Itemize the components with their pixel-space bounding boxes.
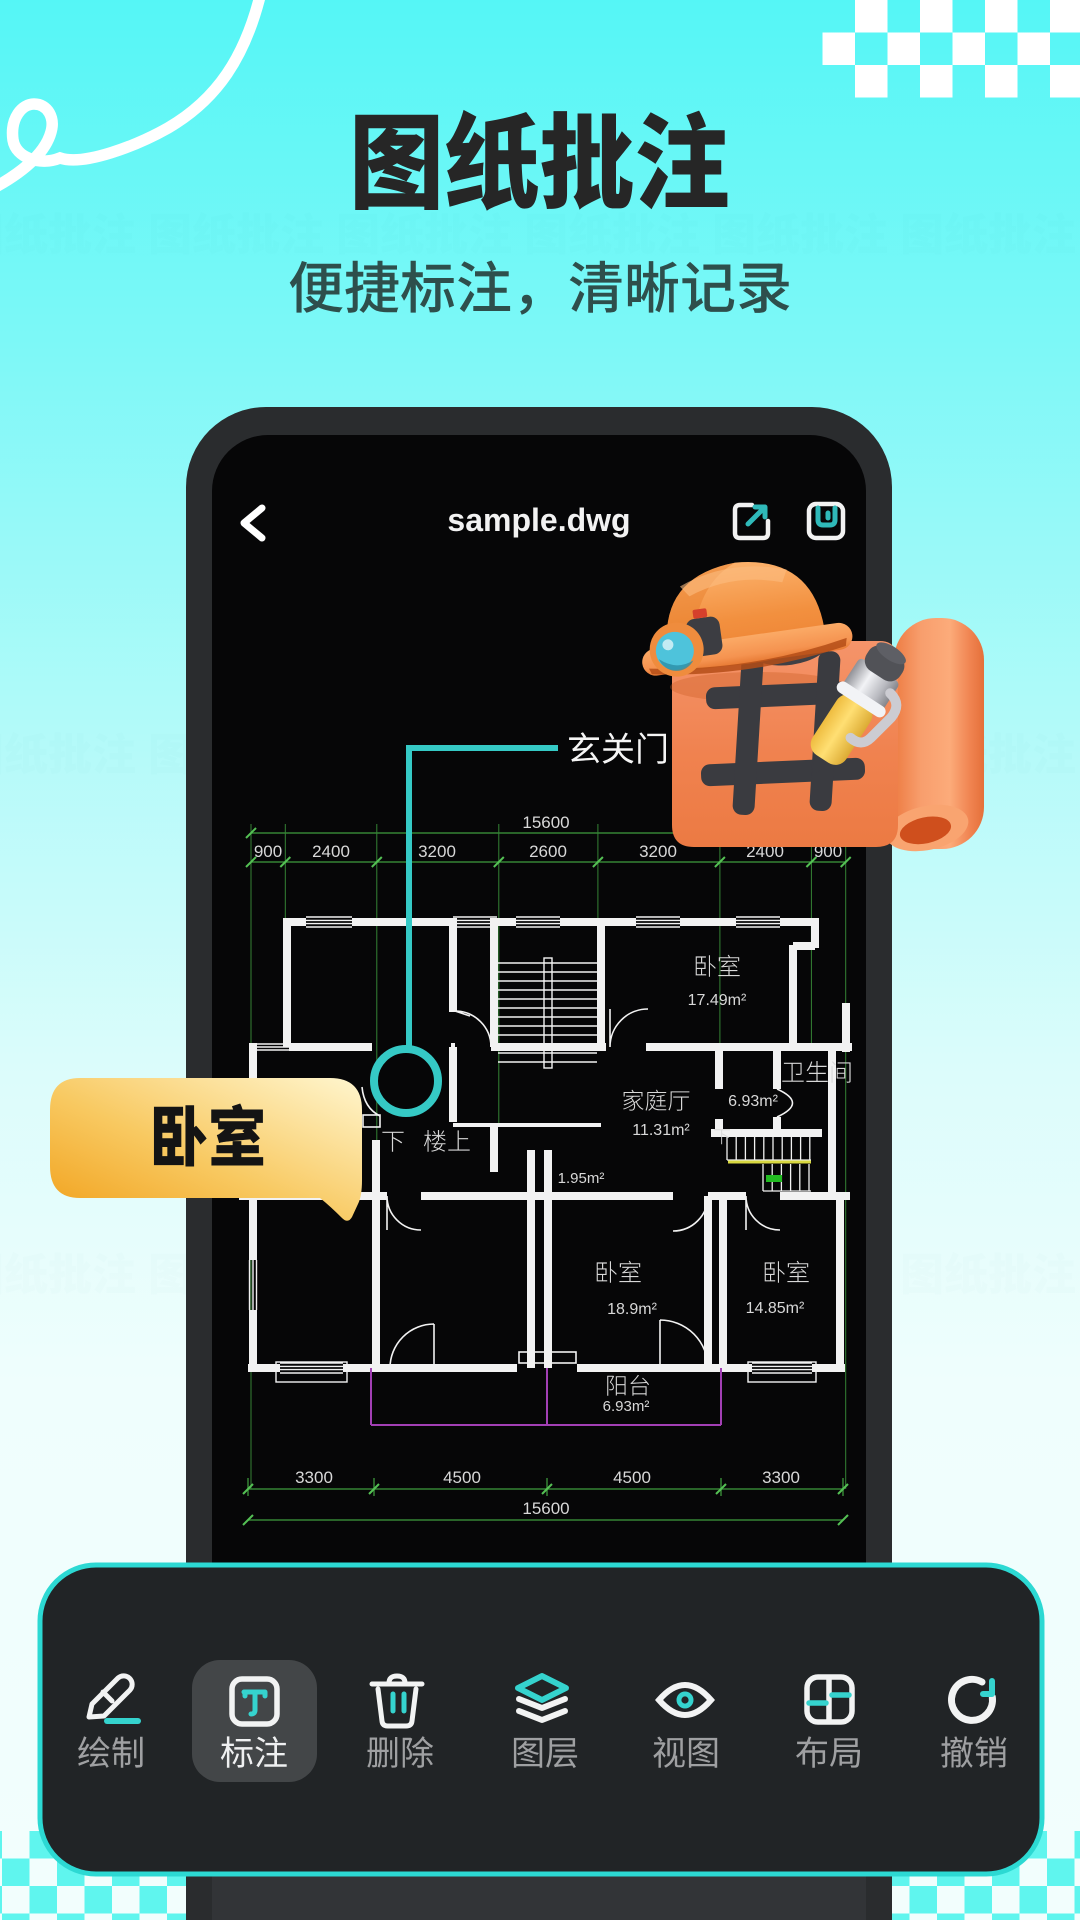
svg-text:1.95m²: 1.95m²	[558, 1170, 605, 1187]
svg-text:14.85m²: 14.85m²	[746, 1300, 805, 1317]
svg-text:4500: 4500	[443, 1468, 481, 1487]
svg-text:2600: 2600	[529, 842, 567, 861]
svg-text:4500: 4500	[613, 1468, 651, 1487]
svg-text:17.49m²: 17.49m²	[688, 992, 747, 1009]
svg-text:15600: 15600	[522, 1499, 569, 1518]
svg-text:18.9m²: 18.9m²	[607, 1301, 657, 1318]
svg-text:6.93m²: 6.93m²	[728, 1093, 778, 1110]
svg-text:6.93m²: 6.93m²	[603, 1398, 650, 1415]
svg-text:900: 900	[254, 842, 282, 861]
svg-text:3300: 3300	[295, 1468, 333, 1487]
svg-text:11.31m²: 11.31m²	[632, 1122, 690, 1139]
svg-text:3200: 3200	[639, 842, 677, 861]
svg-text:2400: 2400	[312, 842, 350, 861]
svg-text:3200: 3200	[418, 842, 456, 861]
svg-text:sample.dwg: sample.dwg	[447, 502, 630, 538]
svg-text:15600: 15600	[522, 813, 569, 832]
svg-text:3300: 3300	[762, 1468, 800, 1487]
